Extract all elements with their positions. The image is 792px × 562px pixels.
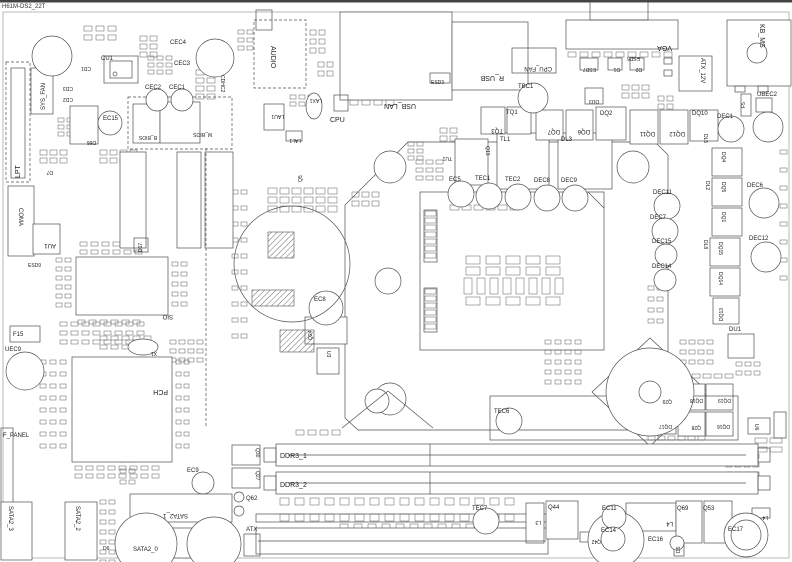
tiny-part — [56, 294, 62, 298]
tiny-part — [170, 349, 176, 353]
tiny-part — [102, 250, 109, 254]
tiny-part — [247, 46, 253, 50]
tiny-part — [707, 350, 713, 354]
socket-center-hole — [375, 268, 401, 294]
tiny-part — [60, 360, 66, 364]
label-dq17: DQ17 — [659, 423, 672, 429]
tiny-part — [328, 197, 337, 203]
tiny-part — [327, 62, 333, 67]
tiny-part — [667, 96, 673, 101]
tiny-part — [207, 94, 215, 99]
label-dl5: DL5 — [702, 134, 708, 143]
tiny-part — [232, 286, 238, 290]
atx12v-side2 — [664, 70, 672, 76]
label-l4: L4 — [762, 514, 768, 520]
tiny-part — [40, 150, 47, 155]
usb-lan-port — [340, 12, 452, 100]
label-dec6: DEC6 — [747, 183, 764, 189]
tiny-part — [241, 254, 247, 258]
tiny-part — [707, 340, 713, 344]
tiny-part — [241, 334, 247, 338]
tiny-part — [370, 498, 379, 505]
tiny-part — [100, 540, 106, 544]
tiny-part — [241, 190, 247, 194]
tiny-part — [295, 498, 304, 505]
tiny-part — [100, 158, 107, 163]
label-dec12: DEC12 — [749, 236, 769, 242]
tiny-part — [56, 303, 62, 307]
tiny-part — [65, 276, 71, 280]
tiny-part — [50, 396, 56, 400]
tiny-part — [60, 396, 66, 400]
tiny-part — [110, 158, 117, 163]
label-tl1: TL1 — [500, 137, 511, 143]
tiny-part — [108, 474, 115, 478]
tiny-part — [770, 438, 782, 443]
tiny-part — [318, 62, 324, 67]
tiny-part — [58, 125, 64, 129]
tiny-part — [340, 498, 349, 505]
tiny-part — [109, 550, 115, 554]
tiny-part — [632, 93, 639, 98]
tiny-part — [374, 100, 382, 105]
tiny-part — [196, 94, 204, 99]
tiny-part — [140, 52, 147, 57]
label-ubec2: UBEC2 — [757, 92, 778, 98]
label-q29: Q29 — [662, 398, 672, 404]
tiny-part — [280, 514, 289, 521]
tiny-part — [505, 498, 514, 505]
tiny-part — [148, 70, 154, 74]
label-dq6: DQ6 — [577, 128, 590, 134]
tiny-part — [100, 336, 107, 340]
tiny-part — [658, 104, 664, 109]
fan-hub-2 — [365, 389, 389, 413]
tiny-part — [400, 514, 409, 521]
tiny-part — [166, 56, 172, 60]
label-dq19: DQ19 — [718, 397, 731, 403]
tiny-part — [292, 197, 301, 203]
tiny-part — [568, 52, 576, 57]
boardview-canvas: H61M-DS2_22T LPTAUDIOUSB_LANR_USBESD3VGA… — [0, 0, 792, 562]
tiny-part — [241, 238, 247, 242]
tiny-part — [184, 408, 189, 412]
tiny-part — [102, 242, 109, 246]
tiny-part — [385, 514, 394, 521]
tiny-part — [141, 466, 148, 470]
tiny-part — [207, 78, 215, 83]
cap-large-1 — [32, 36, 72, 76]
tiny-part — [780, 276, 787, 280]
tiny-part — [328, 206, 337, 212]
tiny-part — [268, 188, 277, 194]
tiny-part — [65, 258, 71, 262]
ubec2-part — [756, 98, 772, 112]
tiny-part — [40, 396, 46, 400]
cu1-dot — [113, 72, 117, 76]
label-q69: Q69 — [677, 506, 689, 512]
label-d2: D2 — [635, 66, 642, 72]
tiny-part — [680, 340, 686, 344]
tiny-part — [172, 282, 178, 286]
dq7-part — [536, 110, 563, 140]
label-q28: Q28 — [691, 424, 701, 430]
socket-hole-tl — [374, 151, 406, 183]
tiny-part — [698, 340, 704, 344]
tiny-part — [197, 349, 203, 353]
tiny-part — [703, 374, 711, 378]
tiny-part — [692, 374, 700, 378]
label-l4: L4 — [666, 520, 673, 526]
tiny-part — [280, 498, 289, 505]
tiny-part — [109, 510, 115, 514]
label-du1: DU1 — [729, 327, 742, 333]
tiny-part — [362, 100, 370, 105]
tiny-part — [50, 420, 56, 424]
tiny-part — [50, 444, 56, 448]
label-sata2-1: SATA2_1 — [163, 512, 188, 518]
tiny-part — [184, 396, 189, 400]
tiny-part — [445, 514, 454, 521]
label-f5: F5 — [741, 102, 747, 108]
tiny-part — [430, 514, 439, 521]
label-d5: D5 — [676, 546, 682, 553]
label-cd1: CD1 — [81, 65, 91, 71]
tiny-part — [320, 430, 328, 435]
label-dec7: DEC7 — [650, 215, 667, 221]
tiny-part — [60, 150, 67, 155]
tiny-part — [166, 70, 172, 74]
tiny-part — [736, 362, 742, 366]
tiny-part — [170, 340, 176, 344]
label-sata2-0: SATA2_0 — [133, 547, 158, 553]
cap-large-3 — [753, 112, 783, 142]
tiny-part — [725, 374, 733, 378]
tiny-part — [120, 469, 126, 473]
label-dq13: DQ13 — [719, 308, 725, 321]
label-lax1: LAX1 — [310, 97, 322, 103]
tiny-part — [75, 466, 82, 470]
label-dec9: DEC9 — [561, 178, 578, 184]
tiny-part — [96, 26, 104, 31]
tiny-part — [310, 30, 316, 35]
tiny-part — [770, 447, 782, 452]
tiny-part — [65, 294, 71, 298]
label-dq10: DQ10 — [692, 111, 708, 117]
tiny-part — [780, 204, 787, 208]
label-vga: VGA — [657, 44, 672, 51]
tiny-part — [50, 360, 56, 364]
tiny-part — [40, 432, 46, 436]
tiny-part — [82, 340, 89, 344]
keepout-hatch-1 — [268, 232, 294, 258]
label-d1: D1 — [613, 66, 620, 72]
tiny-part — [755, 438, 767, 443]
tiny-part — [622, 93, 629, 98]
label-ec17: EC17 — [728, 527, 744, 533]
tiny-part — [304, 197, 313, 203]
tiny-part — [148, 56, 154, 60]
tiny-part — [60, 384, 66, 388]
tiny-part — [680, 350, 686, 354]
tiny-part — [100, 345, 107, 349]
tiny-part — [247, 38, 253, 42]
label-q5: Q5 — [298, 175, 304, 182]
atx12v-side1 — [664, 58, 672, 64]
tiny-part — [707, 360, 713, 364]
label-esd5: ESD5 — [627, 55, 640, 61]
tiny-part — [241, 318, 247, 322]
tiny-part — [60, 340, 67, 344]
tiny-part — [290, 95, 296, 99]
tiny-part — [350, 100, 358, 105]
tiny-part — [664, 52, 672, 57]
tiny-part — [40, 444, 46, 448]
label-atx-12v: ATX_12V — [699, 58, 705, 83]
label-dl8: DL8 — [702, 240, 708, 249]
label-ec5: EC5 — [449, 177, 461, 183]
label-cec3: CEC3 — [174, 61, 191, 67]
dq12-part — [660, 110, 688, 144]
u6-side — [774, 412, 786, 438]
ddr3-1-latch-l — [264, 448, 276, 462]
tiny-part — [745, 362, 751, 366]
tiny-part — [780, 150, 787, 154]
tiny-part — [58, 132, 64, 136]
cec1-cap — [171, 89, 193, 111]
tiny-part — [93, 340, 100, 344]
tiny-part — [181, 282, 187, 286]
tiny-part — [60, 331, 67, 335]
label-dec15: DEC15 — [652, 239, 672, 245]
tiny-part — [310, 498, 319, 505]
label-dq16: DQ16 — [717, 423, 730, 429]
tiny-part — [97, 474, 104, 478]
tiny-part — [137, 331, 144, 335]
tiny-part — [157, 63, 163, 67]
dq19-part — [706, 384, 733, 410]
label-cec2: CEC2 — [145, 85, 162, 91]
label-d6: D6 — [103, 546, 110, 552]
dq15-part — [710, 238, 740, 266]
label-cec1: CEC1 — [169, 85, 186, 91]
tiny-part — [319, 48, 325, 53]
label-f-panel: F_PANEL — [3, 433, 30, 439]
dec14-cap — [654, 269, 676, 291]
label-f15: F15 — [13, 332, 24, 338]
tiny-part — [157, 70, 163, 74]
tiny-part — [150, 36, 157, 41]
tiny-part — [280, 188, 289, 194]
ec5-cap — [448, 181, 474, 207]
tiny-part — [60, 420, 66, 424]
label-dq4: DQ4 — [720, 152, 726, 163]
tiny-part — [280, 197, 289, 203]
tiny-part — [60, 322, 67, 326]
label-b-bios: B_BIOS — [138, 134, 157, 140]
tiny-part — [100, 150, 107, 155]
tiny-part — [65, 303, 71, 307]
tiny-part — [319, 39, 325, 44]
tiny-part — [667, 104, 673, 109]
tiny-part — [109, 530, 115, 534]
tiny-part — [328, 188, 337, 194]
label-dq11: DQ11 — [639, 130, 655, 136]
ec17-cap-inner — [731, 520, 761, 550]
tiny-part — [40, 408, 46, 412]
tiny-part — [460, 514, 469, 521]
label-tec1: TEC1 — [475, 176, 491, 182]
label-cec4: CEC4 — [170, 40, 187, 46]
label-tec7: TEC7 — [472, 506, 488, 512]
tiny-part — [108, 35, 116, 40]
tiny-part — [172, 292, 178, 296]
tiny-part — [304, 188, 313, 194]
label-q62: Q62 — [246, 496, 258, 502]
ddr3-2-latch-l — [264, 476, 276, 490]
tiny-part — [130, 474, 137, 478]
label-q44: Q44 — [548, 505, 560, 511]
tiny-part — [176, 396, 181, 400]
sata2-3-port — [1, 502, 32, 560]
tiny-part — [232, 302, 238, 306]
tiny-part — [188, 349, 194, 353]
sata2-2-port — [65, 502, 97, 560]
page-edge-strip — [0, 0, 792, 3]
tiny-part — [310, 48, 316, 53]
tiny-part — [181, 292, 187, 296]
tiny-part — [184, 444, 189, 448]
tiny-part — [238, 46, 244, 50]
tiny-part — [157, 56, 163, 60]
label-tu1: TU1 — [442, 155, 452, 161]
tiny-part — [179, 349, 185, 353]
tiny-part — [60, 372, 66, 376]
tiny-part — [100, 510, 106, 514]
label-tec6: TEC6 — [494, 409, 510, 415]
tiny-part — [745, 371, 751, 375]
tec2-cap — [505, 184, 531, 210]
tiny-part — [65, 285, 71, 289]
tiny-part — [129, 480, 135, 484]
label-ec14: EC14 — [601, 528, 617, 534]
dec8-cap — [534, 185, 560, 211]
tiny-part — [50, 432, 56, 436]
tiny-part — [241, 222, 247, 226]
dec9-cap — [562, 185, 588, 211]
tiny-part — [232, 334, 238, 338]
label-dl3: DL3 — [561, 137, 573, 143]
tiny-part — [592, 52, 600, 57]
tiny-part — [176, 432, 181, 436]
tiny-part — [140, 44, 147, 49]
label-ec9: EC9 — [187, 468, 199, 474]
label-esd9: ESD9 — [28, 263, 41, 269]
tiny-part — [316, 197, 325, 203]
label-dq15: DQ15 — [717, 242, 723, 255]
tiny-part — [196, 86, 204, 91]
label-au1: AU1 — [44, 242, 56, 248]
tiny-part — [698, 360, 704, 364]
tiny-part — [440, 136, 447, 141]
sio-chip — [76, 257, 168, 315]
tiny-part — [109, 520, 115, 524]
tiny-part — [622, 85, 629, 90]
q62-pad2 — [234, 506, 244, 516]
tiny-part — [238, 38, 244, 42]
label-q24: Q24 — [308, 330, 314, 340]
label-q13: Q13 — [484, 146, 490, 156]
tiny-part — [91, 250, 98, 254]
label-dq14: DQ14 — [717, 272, 723, 285]
label-lal1: LAL1 — [289, 137, 301, 143]
ec9-cap — [192, 472, 214, 494]
tiny-part — [60, 408, 66, 412]
tiny-part — [385, 498, 394, 505]
label-sio: SIO — [162, 313, 173, 319]
du1-part — [728, 334, 754, 358]
dq5-part — [712, 178, 742, 206]
tiny-part — [176, 384, 181, 388]
tiny-part — [93, 331, 100, 335]
vrm-block-1 — [120, 152, 146, 248]
tiny-part — [119, 474, 126, 478]
label-u6: U6 — [753, 424, 759, 431]
tiny-part — [115, 340, 122, 344]
board-title: H61M-DS2_22T — [2, 4, 46, 10]
vrm-block-2 — [177, 152, 201, 248]
tiny-part — [604, 52, 612, 57]
tiny-part — [642, 93, 649, 98]
tiny-part — [152, 474, 159, 478]
label-ec11: EC11 — [602, 506, 617, 512]
tiny-part — [430, 498, 439, 505]
tiny-part — [490, 498, 499, 505]
uec9-cap — [6, 352, 44, 390]
label-ddr3-2: DDR3_2 — [280, 482, 307, 489]
tiny-part — [113, 250, 120, 254]
tiny-part — [319, 30, 325, 35]
tiny-part — [355, 498, 364, 505]
tiny-part — [80, 250, 87, 254]
label-ec8: EC8 — [314, 297, 326, 303]
label-d17: D17 — [138, 243, 144, 252]
dec12-cap — [751, 242, 781, 272]
dq14-part — [710, 268, 740, 296]
cap-large-2 — [196, 39, 234, 77]
tiny-part — [316, 188, 325, 194]
label-sata2-3: SATA2_3 — [7, 506, 13, 531]
tiny-part — [108, 26, 116, 31]
label-cdhc2: CDHC2 — [219, 75, 225, 92]
label-tq1: TQ1 — [506, 110, 518, 116]
tiny-part — [120, 480, 126, 484]
label-d7: D7 — [46, 169, 53, 175]
tiny-part — [292, 206, 301, 212]
d66-chip — [70, 106, 98, 144]
label-cu1: CU1 — [101, 56, 114, 62]
label-dq7: DQ7 — [547, 128, 560, 134]
tiny-part — [580, 52, 588, 57]
tiny-part — [698, 436, 705, 440]
label-sys-fan: SYS_FAN — [41, 83, 47, 110]
tiny-part — [82, 331, 89, 335]
dq1-part — [712, 208, 742, 236]
tiny-part — [241, 302, 247, 306]
tiny-part — [109, 500, 115, 504]
label-q53: Q53 — [703, 506, 715, 512]
tiny-part — [184, 384, 189, 388]
